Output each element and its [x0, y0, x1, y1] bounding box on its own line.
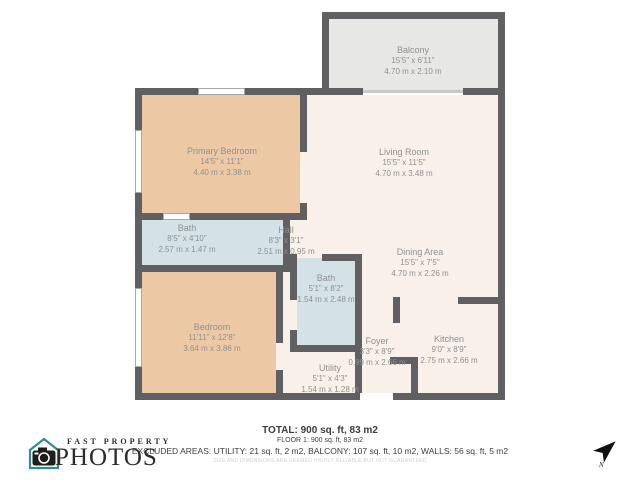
room-label-balcony: Balcony 15'5" x 6'11" 4.70 m x 2.10 m	[384, 44, 441, 78]
window	[198, 88, 245, 95]
room-name: Utility	[301, 362, 358, 374]
room-name: Living Room	[375, 146, 432, 158]
wall-segment	[411, 357, 418, 400]
wall-segment	[276, 265, 283, 343]
room-dims-imperial: 15'5" x 7'5"	[391, 258, 448, 269]
room-dims-imperial: 5'1" x 4'3"	[301, 374, 358, 385]
room-dims-imperial: 9'0" x 8'9"	[420, 345, 477, 356]
sliding-door	[363, 90, 463, 93]
room-dims-imperial: 8'5" x 4'10"	[158, 234, 215, 245]
room-label-bath: Bath 8'5" x 4'10" 2.57 m x 1.47 m	[158, 222, 215, 256]
wall-segment	[322, 12, 505, 19]
north-arrow: N	[592, 436, 622, 472]
room-dims-metric: 1.54 m x 1.28 m	[301, 385, 358, 396]
wall-segment	[276, 370, 283, 393]
wall-segment	[135, 88, 198, 95]
north-arrow-icon	[592, 436, 620, 464]
floor-plan: Balcony 15'5" x 6'11" 4.70 m x 2.10 m Pr…	[0, 0, 640, 480]
room-dims-imperial: 14'5" x 11'1"	[187, 157, 257, 168]
window	[135, 130, 142, 193]
wall-segment	[135, 265, 290, 272]
room-name: Dining Area	[391, 246, 448, 258]
wall-segment	[458, 297, 505, 304]
room-label-dining-area: Dining Area 15'5" x 7'5" 4.70 m x 2.26 m	[391, 246, 448, 280]
room-dims-imperial: 3'3" x 8'9"	[348, 347, 405, 358]
room-dims-metric: 4.70 m x 3.48 m	[375, 169, 432, 180]
room-dims-metric: 2.57 m x 1.47 m	[158, 245, 215, 256]
wall-segment	[393, 393, 505, 400]
wall-segment	[290, 330, 297, 352]
room-name: Balcony	[384, 44, 441, 56]
room-dims-imperial: 11'11" x 12'8"	[183, 333, 240, 344]
room-dims-metric: 4.40 m x 3.38 m	[187, 168, 257, 179]
wall-segment	[300, 95, 307, 152]
room-label-kitchen: Kitchen 9'0" x 8'9" 2.75 m x 2.66 m	[420, 333, 477, 367]
wall-segment	[322, 12, 329, 95]
wall-segment	[498, 88, 505, 400]
room-dims-imperial: 15'5" x 6'11"	[384, 56, 441, 67]
room-name: Bath	[297, 272, 354, 284]
company-logo: FAST PROPERTY PHOTOS	[26, 435, 161, 475]
room-dims-metric: 4.70 m x 2.10 m	[384, 67, 441, 78]
wall-segment	[135, 213, 163, 220]
room-dims-metric: 4.70 m x 2.26 m	[391, 269, 448, 280]
wall-segment	[393, 297, 400, 323]
north-label: N	[599, 461, 604, 469]
window	[135, 288, 142, 367]
room-name: Foyer	[348, 335, 405, 347]
room-dims-imperial: 15'5" x 11'5"	[375, 158, 432, 169]
logo-bottom-text: PHOTOS	[55, 444, 158, 472]
room-label-utility: Utility 5'1" x 4'3" 1.54 m x 1.28 m	[301, 362, 358, 396]
room-name: Primary Bedroom	[187, 145, 257, 157]
room-name: Bedroom	[183, 321, 240, 333]
room-label-bedroom: Bedroom 11'11" x 12'8" 3.64 m x 3.86 m	[183, 321, 240, 355]
room-name: Bath	[158, 222, 215, 234]
room-label-primary-bedroom: Primary Bedroom 14'5" x 11'1" 4.40 m x 3…	[187, 145, 257, 179]
wall-segment	[135, 193, 142, 288]
room-dims-metric: 2.75 m x 2.66 m	[420, 356, 477, 367]
room-name: Hall	[257, 224, 314, 236]
room-label-hall: Hall 8'3" x 3'1" 2.51 m x 0.95 m	[257, 224, 314, 258]
room-dims-metric: 2.51 m x 0.95 m	[257, 247, 314, 258]
room-dims-metric: 1.54 m x 2.48 m	[297, 295, 354, 306]
room-dims-imperial: 5'1" x 8'2"	[297, 284, 354, 295]
wall-segment	[135, 88, 142, 130]
wall-segment	[245, 88, 363, 95]
room-label-bath-2: Bath 5'1" x 8'2" 1.54 m x 2.48 m	[297, 272, 354, 306]
room-label-living-room: Living Room 15'5" x 11'5" 4.70 m x 3.48 …	[375, 146, 432, 180]
room-dims-imperial: 8'3" x 3'1"	[257, 236, 314, 247]
room-name: Kitchen	[420, 333, 477, 345]
door-opening	[163, 213, 190, 220]
room-dims-metric: 3.64 m x 3.86 m	[183, 344, 240, 355]
wall-segment	[290, 254, 297, 300]
wall-segment	[498, 12, 505, 95]
